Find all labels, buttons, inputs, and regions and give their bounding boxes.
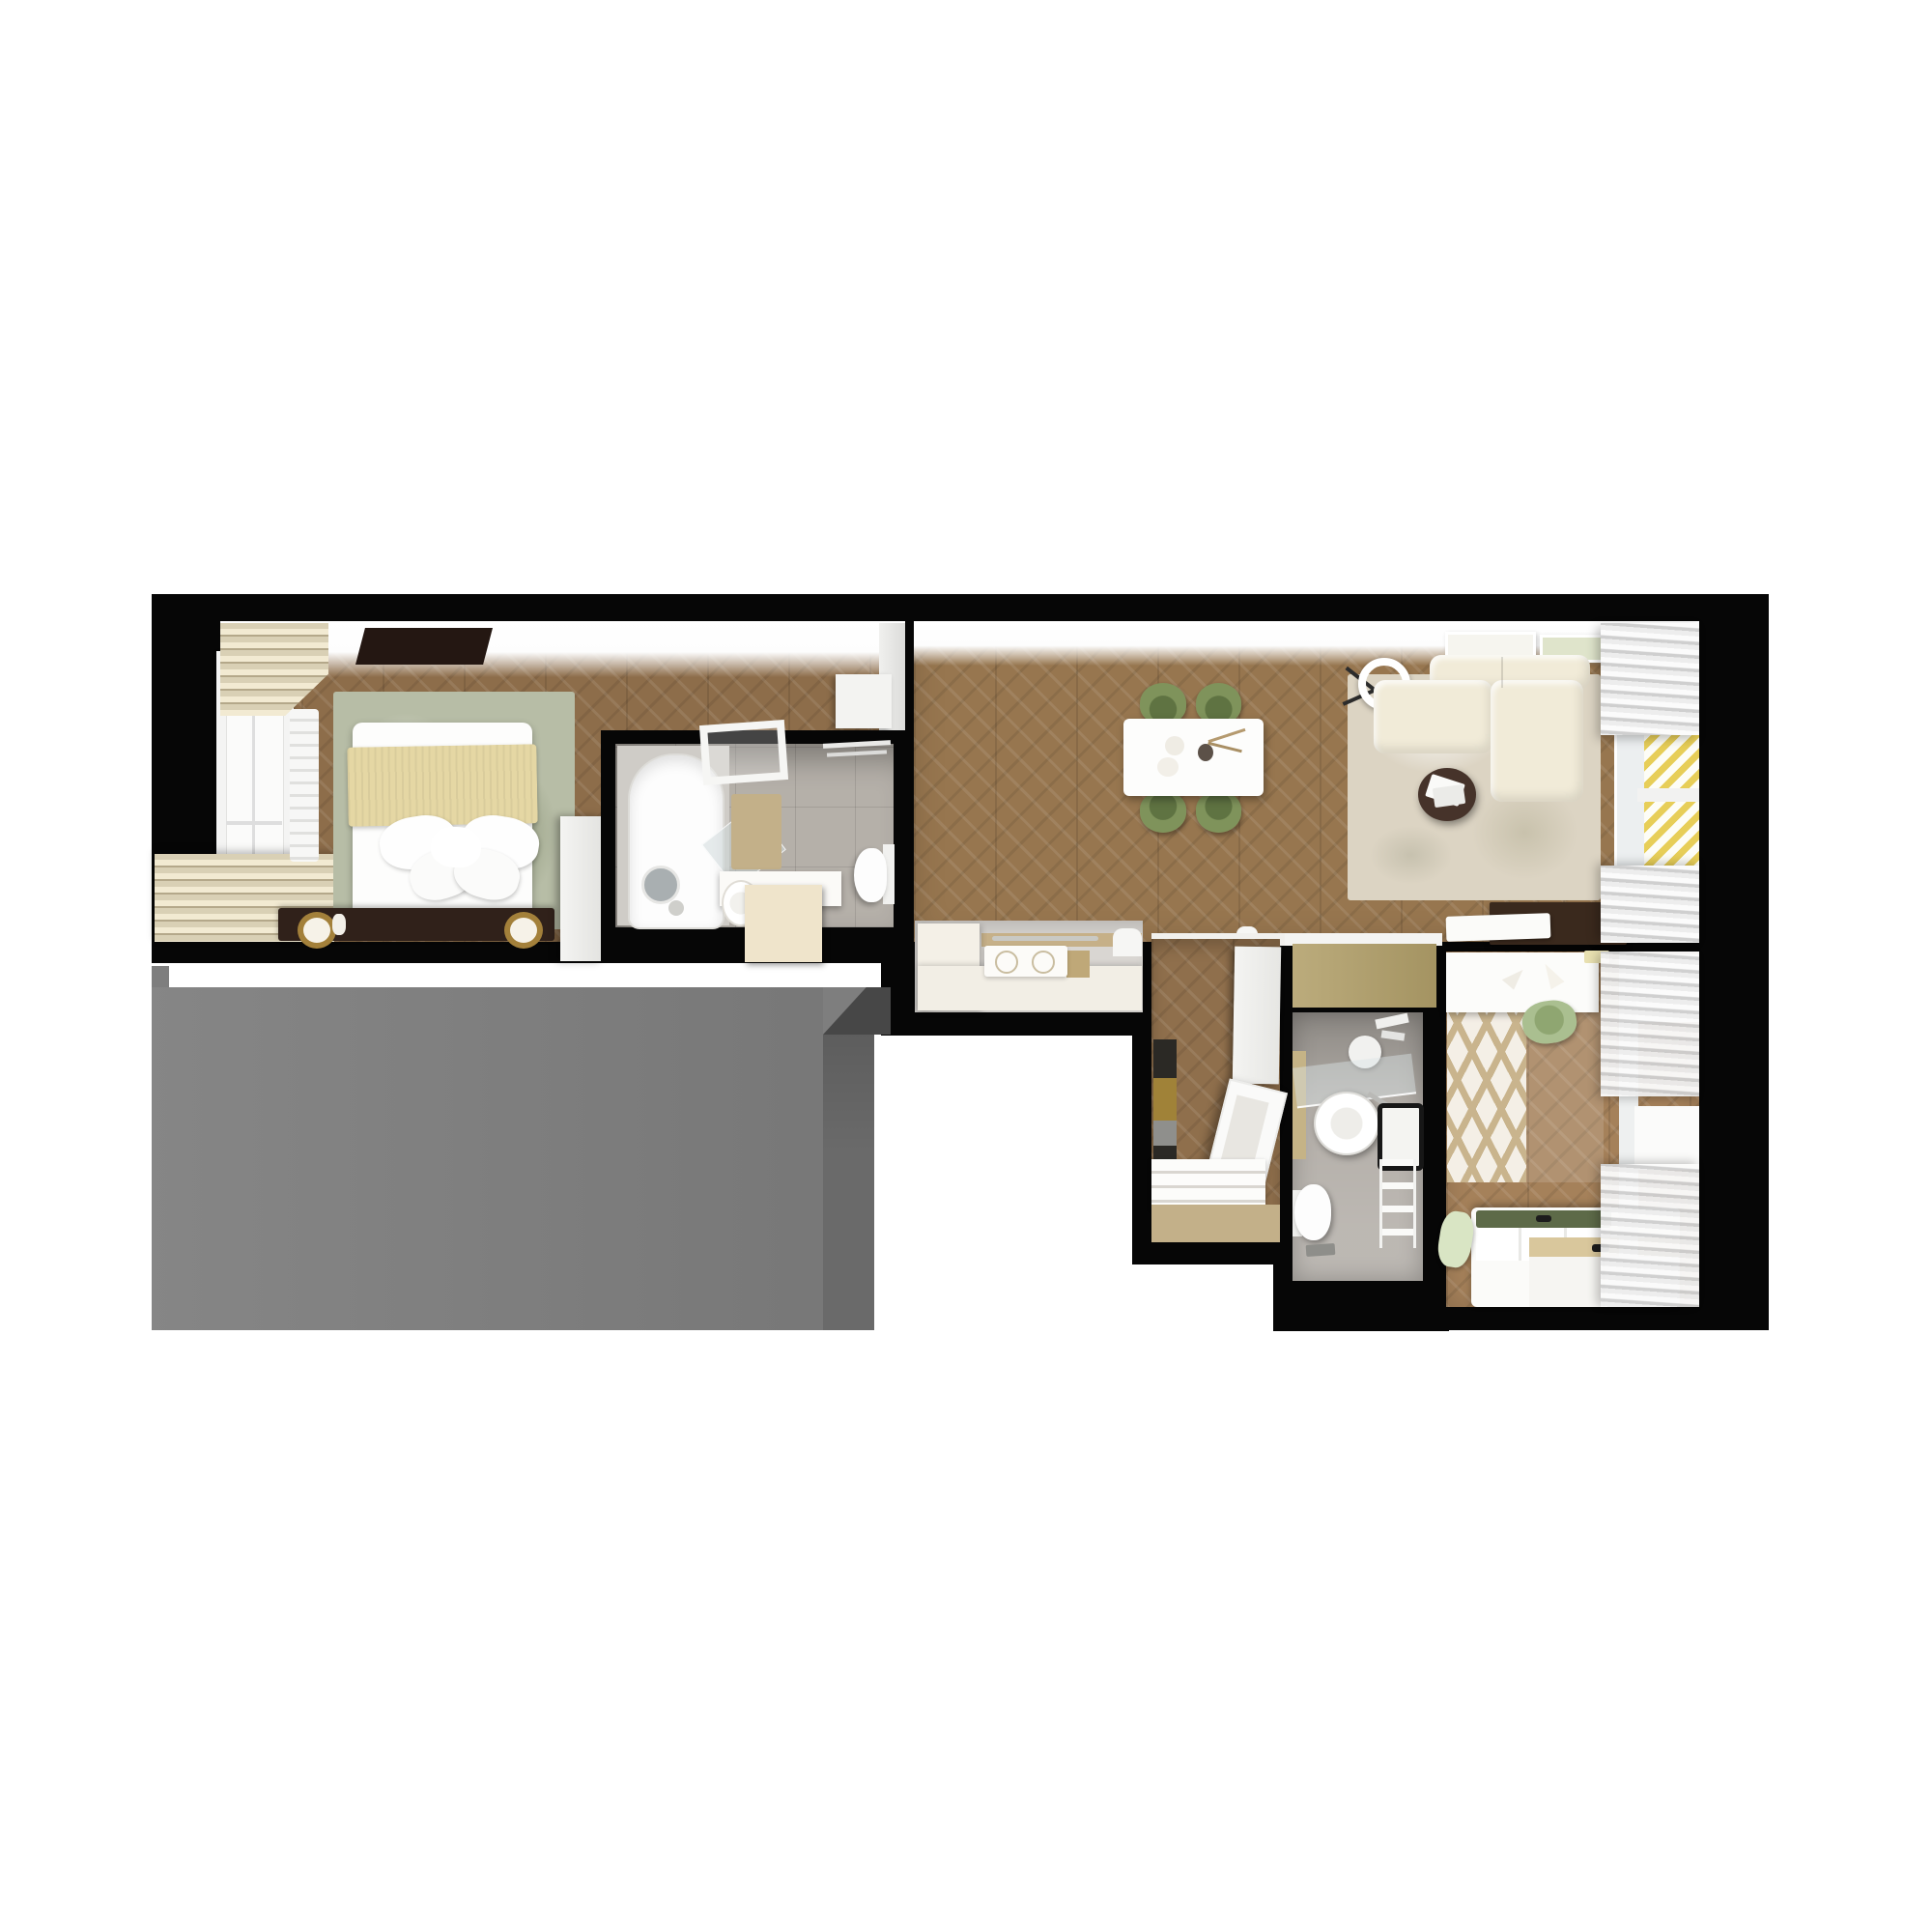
neighbor-slab-top: [152, 987, 823, 1330]
entry-runner-rug: [1153, 1078, 1177, 1121]
sofa-chaise: [1491, 680, 1583, 802]
bathroom-toilet: [854, 848, 887, 902]
entry-runner-rug: [1153, 1039, 1177, 1078]
kitchen-faucet-rail: [992, 936, 1098, 941]
nightstand-lamp-left: [298, 912, 336, 949]
kids-bed-handle: [1536, 1215, 1551, 1222]
entry-wardrobe: [1233, 947, 1281, 1085]
neighbor-slab-side: [823, 1035, 874, 1330]
neighbor-slab-notch: [152, 966, 169, 989]
cooktop-burner: [1032, 951, 1055, 974]
cooktop-burner: [995, 951, 1018, 974]
dining-table-plate: [1165, 736, 1184, 755]
sofa-seam: [1501, 657, 1503, 688]
dining-table-plate: [1157, 757, 1179, 777]
dining-chair: [1140, 792, 1186, 833]
bathroom-ceiling-light-frame: [699, 720, 788, 785]
kids-curtain: [1601, 952, 1699, 1096]
bedroom-wardrobe: [560, 816, 603, 961]
kitchen-counter-side-face: [1066, 951, 1090, 978]
entry-bench: [1151, 1159, 1265, 1207]
kids-curtain: [1601, 1164, 1699, 1307]
bath-mat: [731, 794, 781, 869]
built-in-closet: [1293, 944, 1436, 1008]
living-curtain-top: [1601, 623, 1699, 735]
floorplan-render: [0, 0, 1932, 1932]
bedroom-radiator: [290, 709, 319, 862]
wc-phone-on-floor: [1306, 1243, 1336, 1257]
bedroom-window-mullion-h: [226, 821, 282, 825]
bathroom-round-mirror: [641, 866, 680, 904]
entry-runner-rug: [1153, 1121, 1177, 1146]
yellow-screen-divider: [1637, 788, 1699, 802]
dining-chair: [1140, 683, 1186, 724]
bedroom-dresser: [836, 674, 892, 728]
kids-chevron-rug: [1447, 1012, 1526, 1182]
passage-jamb-left: [1113, 928, 1142, 956]
bathtub-faucet: [668, 900, 684, 916]
sideboard-white-tray: [1446, 913, 1551, 942]
wc-towel-ladder: [1379, 1159, 1416, 1248]
dining-chair: [1196, 683, 1241, 724]
dining-chair: [1196, 792, 1241, 833]
kids-desk: [1446, 952, 1599, 1012]
kids-window: [1634, 1106, 1699, 1170]
entry-door-mat: [1151, 1205, 1280, 1242]
nightstand-vase-left: [332, 914, 346, 935]
living-curtain-bottom: [1601, 866, 1699, 943]
sofa-left-seat: [1374, 680, 1492, 753]
wc-round-sink: [1314, 1092, 1379, 1155]
bathroom-vanity-cabinet: [745, 885, 822, 962]
bed-throw-blanket: [347, 744, 537, 826]
wc-toilet: [1294, 1184, 1331, 1240]
bedroom-ceiling-light: [355, 628, 493, 665]
dining-table-vase: [1198, 744, 1213, 761]
nightstand-lamp-right: [504, 912, 543, 949]
